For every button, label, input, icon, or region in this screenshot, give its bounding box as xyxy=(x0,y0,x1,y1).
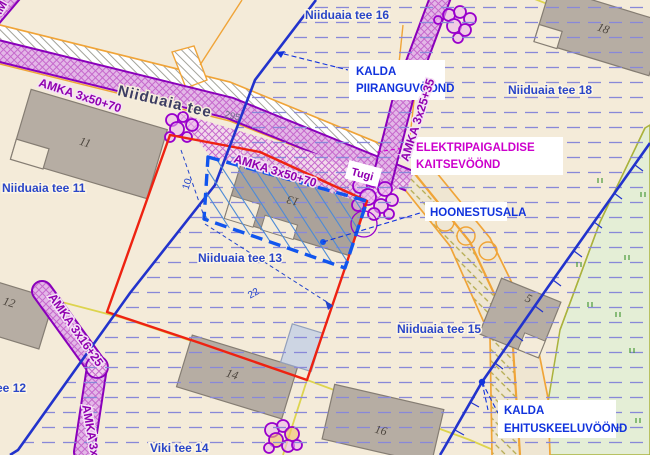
parcel-label-tee11: Niiduaia tee 11 xyxy=(2,181,86,195)
parcel-label-tee12: Niiduaia tee 12 xyxy=(0,381,26,395)
ehituskeelu-label-line1: KALDA xyxy=(504,405,544,417)
plan-canvas: KALDA PIIRANGUVÖÖND ELEKTRIPAIGALDISE KA… xyxy=(0,0,650,455)
elektri-label-line1: ELEKTRIPAIGALDISE xyxy=(416,142,535,154)
parcel-label-tee13: Niiduaia tee 13 xyxy=(198,251,282,265)
piirang-label-line2: PIIRANGUVÖÖND xyxy=(356,82,454,95)
elektri-label-line2: KAITSEVÖÖND xyxy=(416,158,500,171)
parcel-label-tee18: Niiduaia tee 18 xyxy=(508,83,592,97)
parcel-label-tee16: Niiduaia tee 16 xyxy=(305,8,389,22)
detail-plan-map: KALDA PIIRANGUVÖÖND ELEKTRIPAIGALDISE KA… xyxy=(0,0,650,455)
piirang-label-line1: KALDA xyxy=(356,66,396,78)
hoonestusala-label: HOONESTUSALA xyxy=(430,207,526,219)
parcel-label-tee15: Niiduaia tee 15 xyxy=(397,322,481,336)
ehituskeelu-label-line2: EHITUSKEELUVÖÖND xyxy=(504,422,627,435)
parcel-label-viki14: Viki tee 14 xyxy=(150,441,209,455)
